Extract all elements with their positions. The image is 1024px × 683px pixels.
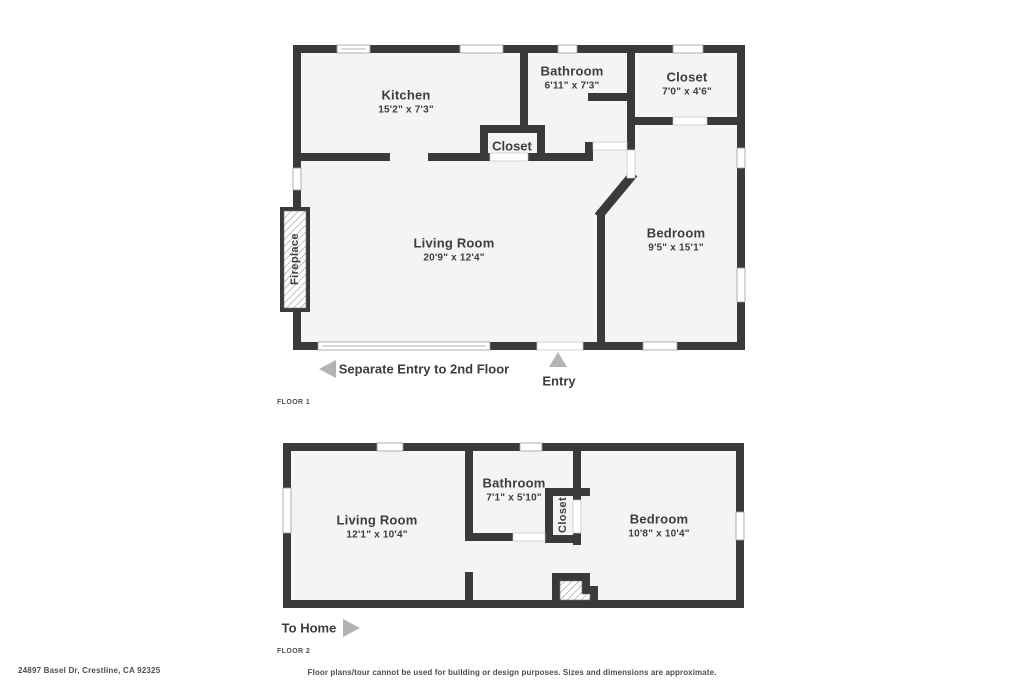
arrow-right-icon	[343, 619, 360, 637]
room-name: Living Room	[414, 236, 495, 250]
entry-annotation: Entry	[542, 374, 575, 389]
room-name: Bathroom	[483, 476, 546, 490]
room-dims: 20'9" x 12'4"	[414, 253, 495, 264]
room-name: Living Room	[337, 513, 418, 527]
floorplan-canvas: Kitchen 15'2" x 7'3" Bathroom 6'11" x 7'…	[0, 0, 1024, 683]
arrow-left-icon	[319, 360, 336, 378]
room-dims: 10'8" x 10'4"	[628, 529, 689, 540]
room-label-f1-bedroom: Bedroom 9'5" x 15'1"	[647, 226, 705, 253]
room-name: Bathroom	[541, 64, 604, 78]
room-name: Closet	[662, 70, 712, 84]
room-dims: 12'1" x 10'4"	[337, 530, 418, 541]
room-label-f2-living: Living Room 12'1" x 10'4"	[337, 513, 418, 540]
room-dims: 7'0" x 4'6"	[662, 87, 712, 98]
room-label-f2-bedroom: Bedroom 10'8" x 10'4"	[628, 512, 689, 539]
room-label-f2-bathroom: Bathroom 7'1" x 5'10"	[483, 476, 546, 503]
floor2-tag: FLOOR 2	[277, 648, 310, 655]
property-address: 24897 Basel Dr, Crestline, CA 92325	[18, 666, 160, 675]
room-name: Bedroom	[628, 512, 689, 526]
room-label-f2-closet: Closet	[557, 497, 569, 533]
room-dims: 15'2" x 7'3"	[378, 105, 434, 116]
floor1-tag: FLOOR 1	[277, 399, 310, 406]
separate-entry-annotation: Separate Entry to 2nd Floor	[339, 362, 509, 377]
room-label-f1-closet-top: Closet 7'0" x 4'6"	[662, 70, 712, 97]
room-name: Kitchen	[378, 88, 434, 102]
room-dims: 6'11" x 7'3"	[541, 81, 604, 92]
disclaimer-text: Floor plans/tour cannot be used for buil…	[308, 668, 717, 677]
room-label-f1-bathroom: Bathroom 6'11" x 7'3"	[541, 64, 604, 91]
room-label-f1-closet-mid: Closet	[492, 139, 532, 154]
room-label-f1-living: Living Room 20'9" x 12'4"	[414, 236, 495, 263]
room-label-fireplace: Fireplace	[289, 233, 301, 285]
to-home-annotation: To Home	[282, 621, 337, 636]
floorplan-drawing	[0, 0, 1024, 683]
room-dims: 7'1" x 5'10"	[483, 493, 546, 504]
room-name: Bedroom	[647, 226, 705, 240]
arrow-up-icon	[549, 352, 567, 367]
room-label-f1-kitchen: Kitchen 15'2" x 7'3"	[378, 88, 434, 115]
room-dims: 9'5" x 15'1"	[647, 243, 705, 254]
